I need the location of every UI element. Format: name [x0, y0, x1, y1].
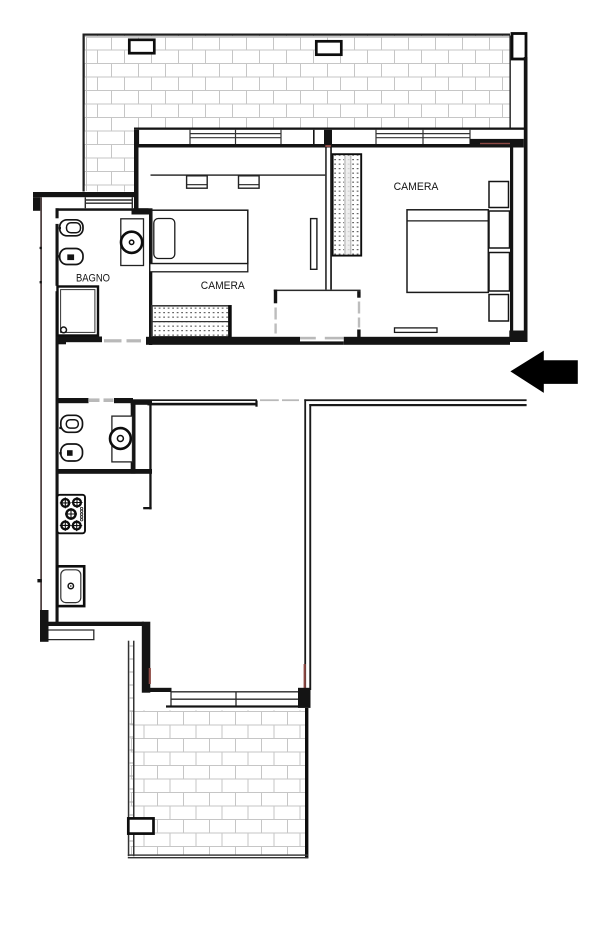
svg-text:CAMERA: CAMERA — [394, 181, 439, 193]
svg-text:BAGNO: BAGNO — [76, 273, 110, 285]
svg-text:CAMERA: CAMERA — [201, 280, 245, 292]
